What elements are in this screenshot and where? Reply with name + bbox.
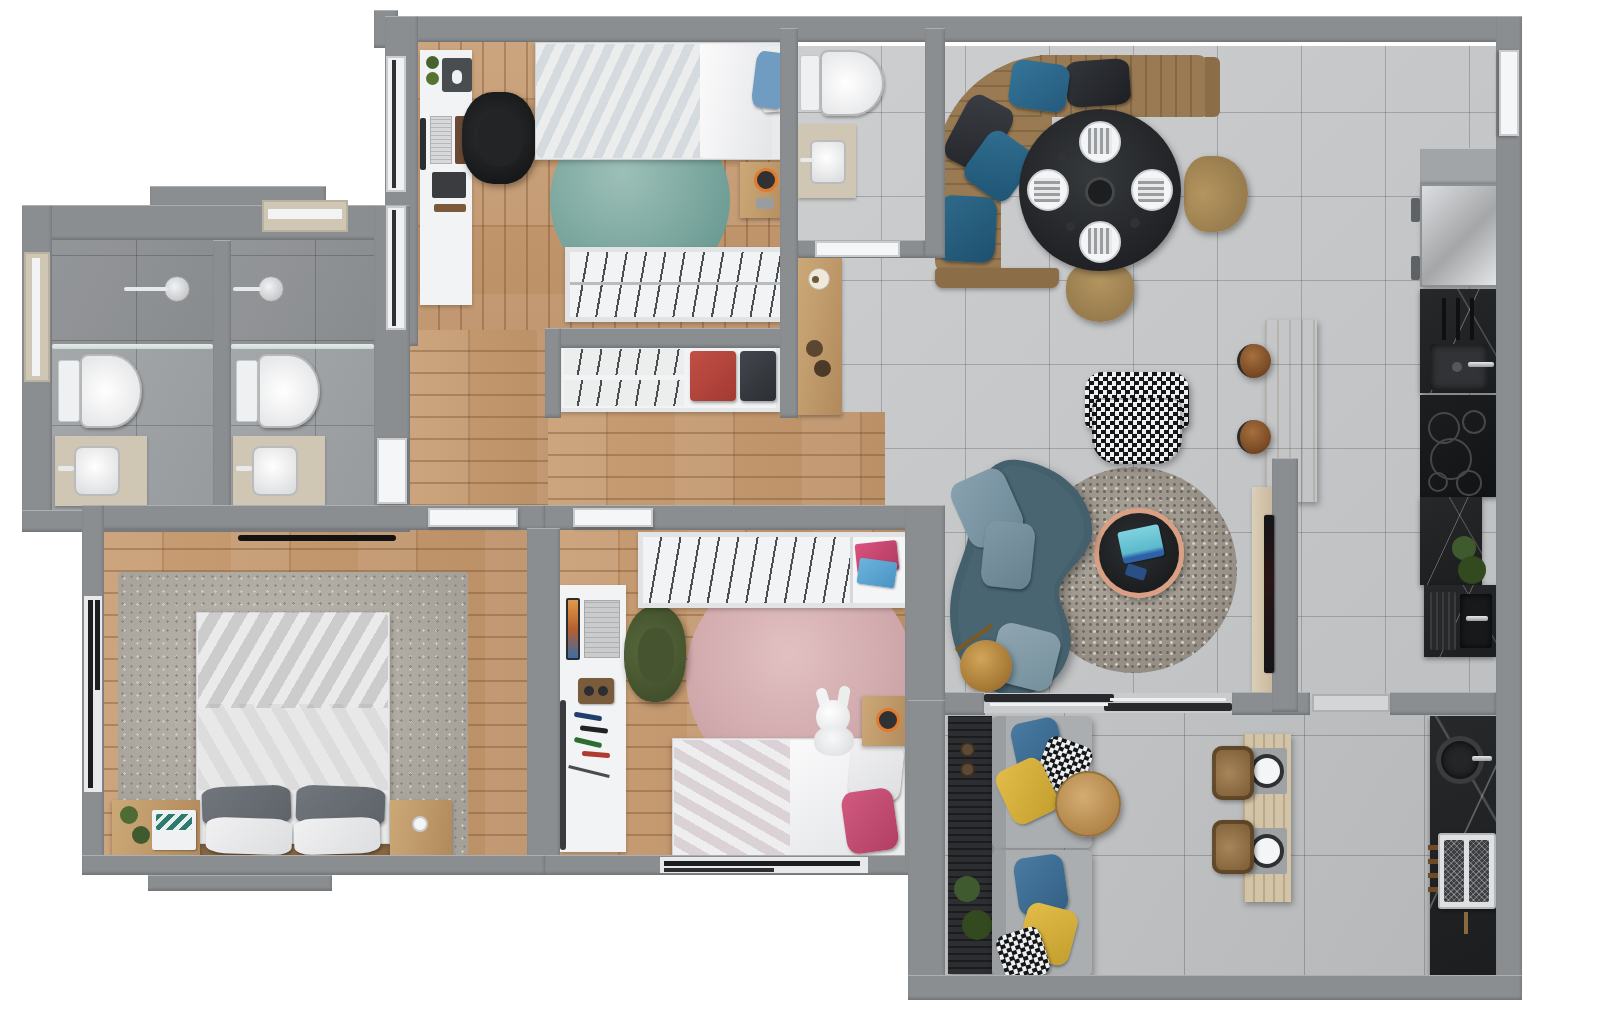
round-wood-table	[1055, 771, 1121, 837]
curtain-rail	[238, 535, 396, 541]
dining-chair-right	[1184, 156, 1248, 232]
sliding-door-pane	[984, 694, 1114, 702]
shower-head-icon	[258, 276, 284, 302]
toilet-bowl	[258, 354, 320, 428]
grill-handle-icon	[1428, 873, 1438, 878]
faucet-icon	[58, 466, 74, 471]
wall-stub-bottom	[148, 875, 332, 891]
wicker-chair	[1212, 820, 1254, 874]
plant-icon	[1458, 556, 1486, 584]
door-bathroom	[377, 438, 407, 504]
mouse	[452, 70, 462, 84]
glass-icon	[1058, 152, 1068, 162]
wall-mounted-tv	[1264, 515, 1274, 673]
door-kids-bedroom	[573, 508, 653, 527]
glasses-lens-icon	[584, 686, 594, 696]
candle-wick	[812, 276, 819, 283]
corner-sofa-end-arm	[1205, 57, 1220, 117]
decor-sphere	[806, 340, 823, 357]
petrol-cushion	[936, 195, 997, 264]
faucet-icon	[236, 466, 252, 471]
utensil-bar-icon	[1442, 298, 1446, 340]
folded-red-clothes	[690, 351, 736, 401]
napkin	[1138, 178, 1164, 202]
white-pillow	[205, 817, 292, 856]
remote	[756, 198, 774, 209]
desk-plant-icon	[426, 72, 439, 85]
wall-balcony-top-a	[945, 692, 985, 715]
glass-icon	[1130, 218, 1140, 228]
window-frame-bar	[664, 861, 860, 866]
bar-stool	[1237, 420, 1271, 454]
window-glass	[268, 209, 342, 219]
green-chair-seat	[638, 628, 674, 682]
door-entrance	[1499, 50, 1519, 136]
teal-book	[156, 814, 192, 830]
window-frame-bar	[664, 868, 774, 872]
faucet-icon	[1468, 362, 1494, 367]
wicker-chair	[1212, 746, 1254, 800]
wardrobe-rail	[570, 282, 785, 285]
window-glass	[32, 258, 40, 376]
window-frame-bar	[95, 600, 100, 690]
bar-stool	[1237, 344, 1271, 378]
toilet-tank	[236, 360, 258, 422]
pink-duvet	[674, 740, 794, 856]
window-frame-bar	[392, 60, 396, 188]
wall-balcony-bottom	[908, 975, 1522, 1000]
faucet-icon	[1472, 756, 1492, 761]
window-bedroom-a	[386, 56, 406, 192]
fridge-handle-icon	[1411, 256, 1420, 280]
corner-sofa-front-arm	[935, 268, 1059, 288]
grill-handle-icon	[1428, 887, 1438, 892]
cup-icon	[960, 762, 975, 777]
shower-arm	[124, 287, 168, 291]
burner-icon	[1428, 472, 1448, 492]
plant-icon	[120, 806, 138, 824]
wc-basin	[810, 140, 846, 184]
desk-tablet	[432, 172, 466, 198]
desk-plant-icon	[426, 56, 439, 69]
houndstooth-armchair-seat	[1092, 398, 1182, 464]
drainboard-ridges	[1430, 592, 1456, 650]
sink-basin-2	[1460, 594, 1492, 648]
sliding-door-glass	[1110, 698, 1226, 701]
floor-lamp-gold	[960, 640, 1012, 692]
gray-duvet	[198, 612, 388, 708]
shower-arm	[233, 287, 261, 291]
shower-area-2	[231, 240, 374, 346]
wall-balcony-top-c	[1390, 692, 1496, 715]
wall-master-bottom	[82, 855, 545, 875]
faucet-icon	[1466, 616, 1488, 621]
burner-icon	[1456, 470, 1482, 496]
shower-glass-2	[231, 344, 374, 349]
grill-grate	[1469, 840, 1489, 902]
closet-hangers-row	[564, 349, 684, 375]
glass-icon	[1066, 222, 1075, 231]
folded-blue-clothes	[856, 557, 897, 588]
black-cushion	[1064, 58, 1131, 108]
wall-bedroom-bottom	[545, 328, 798, 348]
utensil-bar-icon	[1456, 298, 1460, 340]
desk-edge-strip	[560, 700, 566, 850]
sliding-door-pane	[1104, 703, 1232, 711]
petrol-cushion	[1007, 58, 1071, 114]
closet-hangers-row	[564, 380, 684, 406]
laptop-keyboard	[584, 600, 620, 658]
vanity-basin	[252, 446, 298, 496]
grill-handle-icon	[1428, 845, 1438, 850]
speaker-icon	[876, 708, 900, 732]
sofa-cushion	[980, 520, 1037, 591]
wall-balcony-top-b	[1232, 692, 1310, 715]
napkin	[1034, 178, 1060, 202]
cup-icon	[412, 816, 428, 832]
door-wc	[815, 241, 900, 257]
wc-toilet-bowl	[820, 50, 884, 116]
kitchen-tall-cabinet	[1420, 148, 1500, 184]
plate-icon	[1250, 754, 1284, 788]
toilet-bowl	[80, 354, 142, 428]
folded-dark-clothes	[740, 351, 776, 401]
wall-bedroom-divider	[527, 528, 560, 875]
fridge	[1420, 184, 1498, 287]
window-frame-bar	[88, 600, 93, 788]
plant-icon	[962, 910, 992, 940]
pink-pillow	[840, 787, 900, 856]
pen-tray	[434, 204, 466, 212]
utensil-bar-icon	[1470, 298, 1474, 340]
sliding-door-glass	[990, 703, 1108, 706]
door-master-bedroom	[428, 508, 518, 527]
door-balcony-service	[1312, 694, 1390, 712]
window-frame-bar	[392, 210, 396, 326]
wall-wc-right	[925, 28, 945, 258]
wall-tv-partition	[1272, 458, 1298, 712]
wall-closet-side	[545, 328, 561, 418]
white-pillow	[293, 817, 380, 856]
wall-right	[1496, 16, 1522, 1000]
wall-top	[385, 16, 1522, 42]
wall-bath-divider	[213, 240, 231, 512]
wc-toilet-tank	[800, 55, 820, 111]
toilet-tank	[58, 360, 80, 422]
fridge-handle-icon	[1411, 198, 1420, 222]
decor-sphere	[814, 360, 831, 377]
vanity-basin	[74, 446, 120, 496]
hallway-floor-vertical	[410, 330, 548, 508]
laptop-screen	[566, 598, 580, 660]
shower-glass-1	[52, 344, 213, 349]
hallway-floor-horizontal	[548, 412, 885, 508]
cup-icon	[960, 742, 975, 757]
napkin	[1088, 128, 1112, 154]
floor-plan-canvas	[0, 0, 1600, 1013]
window-bedroom-b	[386, 206, 406, 330]
grill-handle-icon	[1428, 859, 1438, 864]
burner-icon	[1462, 410, 1486, 434]
plate-icon	[1250, 834, 1284, 868]
faucet-icon	[800, 158, 814, 162]
white-sheet	[198, 704, 388, 790]
plush-bunny-body	[814, 726, 854, 756]
plant-icon	[954, 876, 980, 902]
glasses-lens-icon	[598, 686, 608, 696]
grill-grate	[1444, 840, 1464, 902]
napkin	[1088, 228, 1112, 254]
keyboard	[430, 116, 452, 164]
skewer	[1464, 912, 1468, 934]
sink-drain-icon	[1452, 362, 1462, 372]
office-chair-seat	[478, 112, 522, 166]
monitor	[420, 118, 426, 170]
dining-chair-bottom	[1066, 262, 1134, 322]
wall-wc-left	[780, 28, 798, 418]
center-bowl	[1085, 177, 1115, 207]
wall-balcony-left	[908, 700, 945, 1000]
plant-icon	[132, 826, 150, 844]
speaker-icon	[754, 168, 778, 192]
